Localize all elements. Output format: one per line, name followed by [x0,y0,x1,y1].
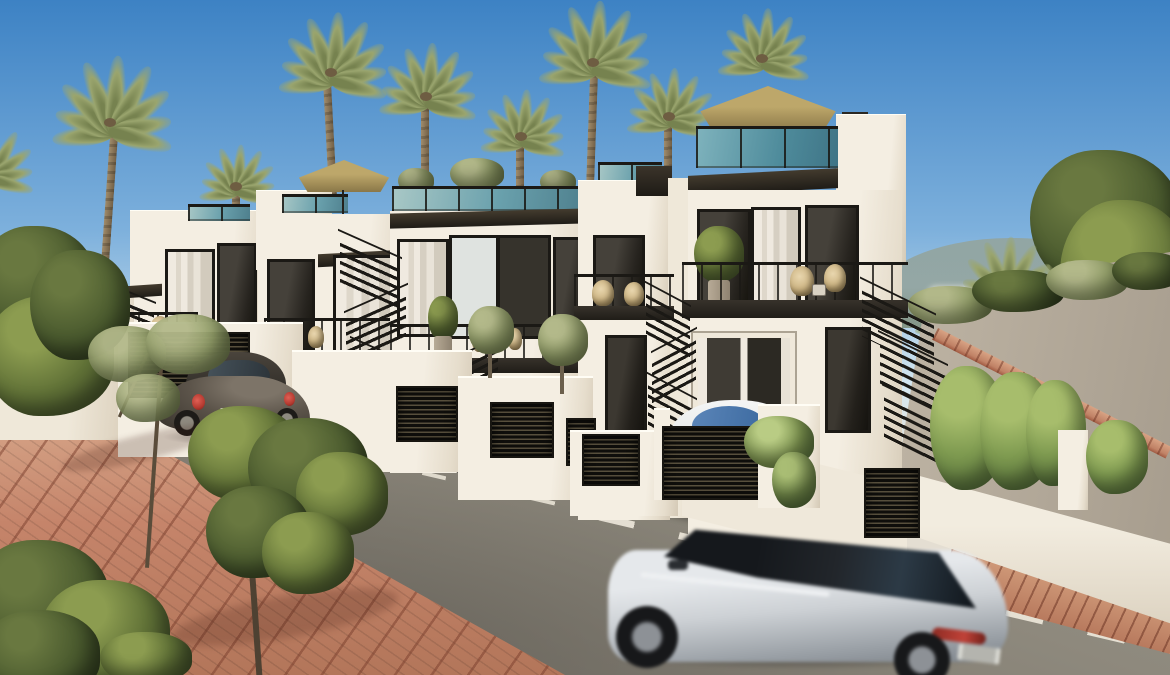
entry-door [828,330,868,430]
balcony-potted-plant [428,296,458,340]
roof-terrace-glass-railing [188,204,250,221]
suv-wheel [616,606,678,668]
foreground-tree-canopy [262,512,354,594]
roof-overhang [636,166,672,196]
olive-tree [468,306,514,354]
rattan-chair [824,264,846,292]
roof-terrace-glass-railing [696,126,838,168]
car-taillight [192,394,205,410]
roof-terrace-glass-railing [282,194,348,213]
hedge-right-small [1086,420,1148,494]
balcony-table [812,284,826,296]
street-tree-canopy [146,314,230,374]
moving-suv-car [606,520,1018,675]
rattan-chair [624,282,644,306]
balcony-chair [308,326,324,348]
garden-pillar-right [1058,430,1088,510]
utility-louver-panel [398,388,456,440]
utility-louver-panel [584,436,638,484]
suv-mirror [668,560,688,570]
roof-terrace-glass-railing [392,186,588,211]
hanging-ivy [772,452,816,508]
architectural-render-scene [0,0,1170,675]
rattan-chair [790,266,814,296]
car-taillight [284,392,295,406]
street-tree-canopy [116,374,180,422]
small-bush [100,632,192,675]
entry-door [608,338,644,434]
ramp-hedgerow [1112,252,1170,290]
rattan-chair [592,280,614,306]
utility-louver-panel [492,404,552,456]
olive-tree [538,314,588,366]
